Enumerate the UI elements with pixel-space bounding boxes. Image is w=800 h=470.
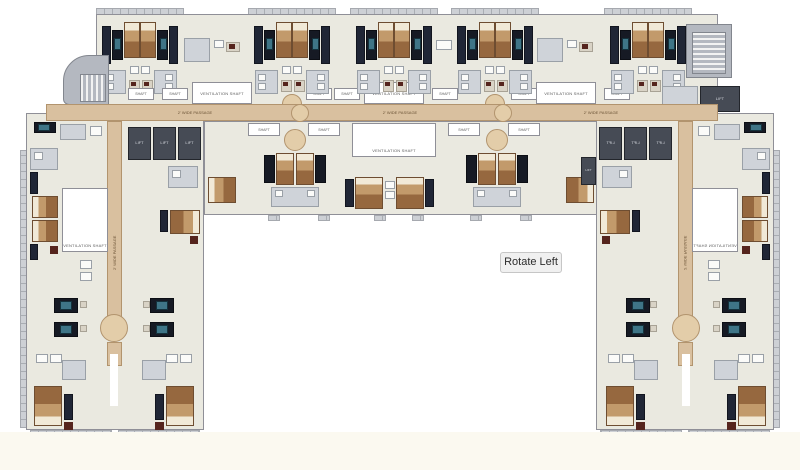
stove xyxy=(283,82,288,86)
bath-fixture xyxy=(317,83,325,90)
bath-fixture xyxy=(165,74,173,81)
bed xyxy=(606,386,634,426)
page-footer-band xyxy=(0,432,800,470)
bed xyxy=(495,22,511,58)
passage-label: 2' WIDE PASSAGE xyxy=(556,107,646,118)
door-fixture xyxy=(130,66,139,74)
bed xyxy=(478,153,496,185)
passage-junction xyxy=(494,104,512,122)
wardrobe xyxy=(64,394,73,420)
fixture xyxy=(36,354,48,363)
tv-screen xyxy=(414,38,421,50)
door-fixture xyxy=(649,66,658,74)
bed xyxy=(34,386,62,426)
bath-fixture xyxy=(619,170,628,178)
bathroom xyxy=(184,38,210,62)
stove xyxy=(582,44,588,49)
bed xyxy=(479,22,495,58)
stove xyxy=(499,82,504,86)
stove xyxy=(486,82,491,86)
bath-fixture xyxy=(214,40,224,48)
left-wing: LIFT LIFT LIFT 2' WIDE PASSAGE VENTILATI… xyxy=(20,108,210,443)
shaft-label: SHAFT xyxy=(135,92,146,96)
bath-fixture xyxy=(520,83,528,90)
balcony xyxy=(412,215,424,221)
chair xyxy=(650,325,657,332)
bath-fixture xyxy=(275,190,283,197)
bath-fixture xyxy=(461,83,469,90)
bath-fixture xyxy=(461,74,469,81)
passage-label-text: 2' WIDE PASSAGE xyxy=(383,110,417,115)
shaft-label: SHAFT xyxy=(169,92,180,96)
bath-fixture xyxy=(258,74,266,81)
chair xyxy=(143,325,150,332)
desk-screen xyxy=(156,301,168,310)
bed xyxy=(738,386,766,426)
light-well xyxy=(110,354,118,406)
stove xyxy=(652,82,657,86)
wardrobe xyxy=(457,26,466,64)
chair xyxy=(650,301,657,308)
door-fixture xyxy=(384,66,393,74)
tv-screen xyxy=(750,124,762,131)
tv-screen xyxy=(368,38,375,50)
ventilation-shaft: VENTILATION SHAFT xyxy=(536,82,596,104)
stove xyxy=(190,236,198,244)
right-wing: LIFT LIFT LIFT 2' WIDE PASSAGE VENTILATI… xyxy=(590,108,780,443)
bathroom xyxy=(62,360,86,380)
bed xyxy=(600,210,630,234)
bathroom xyxy=(714,360,738,380)
fixture xyxy=(708,260,720,269)
bed xyxy=(208,177,236,203)
stove xyxy=(50,246,58,254)
bath-fixture xyxy=(673,74,681,81)
passage-label: 2' WIDE PASSAGE xyxy=(150,107,240,118)
fixture xyxy=(50,354,62,363)
door-fixture xyxy=(293,66,302,74)
chair xyxy=(80,301,87,308)
fixture xyxy=(166,354,178,363)
passage-junction xyxy=(672,314,700,342)
wardrobe xyxy=(423,26,432,64)
balcony xyxy=(318,215,330,221)
tv-screen xyxy=(114,38,121,50)
bed xyxy=(742,220,768,242)
tv-screen xyxy=(160,38,167,50)
wardrobe xyxy=(30,172,38,194)
desk-screen xyxy=(632,325,644,334)
bed xyxy=(276,153,294,185)
bed xyxy=(394,22,410,58)
ventilation-shaft: VENTILATION SHAFT xyxy=(62,188,108,252)
wardrobe xyxy=(155,394,164,420)
fixture xyxy=(90,126,102,136)
ventilation-shaft-label: VENTILATION SHAFT xyxy=(693,243,737,248)
bathroom xyxy=(60,124,86,140)
stove xyxy=(131,82,136,86)
bath-fixture xyxy=(419,83,427,90)
shaft: SHAFT xyxy=(128,88,154,100)
door-fixture xyxy=(496,66,505,74)
bed xyxy=(276,22,292,58)
lift: LIFT xyxy=(178,127,201,160)
bath-fixture xyxy=(614,83,622,90)
door-fixture xyxy=(385,191,395,199)
wardrobe xyxy=(762,244,770,260)
wardrobe xyxy=(762,172,770,194)
stove xyxy=(385,82,390,86)
balcony xyxy=(520,215,532,221)
lift: LIFT xyxy=(128,127,151,160)
fixture xyxy=(738,354,750,363)
stove xyxy=(144,82,149,86)
bed xyxy=(124,22,140,58)
bath-fixture xyxy=(477,190,485,197)
bed xyxy=(140,22,156,58)
tv-screen xyxy=(622,38,629,50)
floorplan-viewer: VENTILATION SHAFT VENTILATION SHAFT VENT… xyxy=(0,0,800,470)
bath-fixture xyxy=(258,83,266,90)
passage-junction xyxy=(486,129,508,151)
desk-screen xyxy=(156,325,168,334)
fixture xyxy=(608,354,620,363)
wardrobe xyxy=(169,26,178,64)
tv-unit xyxy=(466,155,477,183)
tv-screen xyxy=(266,38,273,50)
bed xyxy=(498,153,516,185)
bed xyxy=(742,196,768,218)
bed xyxy=(292,22,308,58)
bath-fixture xyxy=(307,190,315,197)
door-fixture xyxy=(395,66,404,74)
bed xyxy=(355,177,383,209)
bath-fixture xyxy=(419,74,427,81)
apartment-cluster xyxy=(260,127,330,211)
wardrobe xyxy=(636,394,645,420)
wardrobe xyxy=(727,394,736,420)
tv-screen xyxy=(312,38,319,50)
bathroom xyxy=(537,38,563,62)
bed xyxy=(632,22,648,58)
shaft-label: SHAFT xyxy=(341,92,352,96)
passage-label-text: 2' WIDE PASSAGE xyxy=(584,110,618,115)
door-fixture xyxy=(141,66,150,74)
lift: LIFT xyxy=(153,127,176,160)
ventilation-shaft: VENTILATION SHAFT xyxy=(192,82,252,104)
wardrobe xyxy=(254,26,263,64)
fixture xyxy=(80,260,92,269)
bath-fixture xyxy=(34,152,43,160)
bathroom xyxy=(714,124,740,140)
bath-fixture xyxy=(360,83,368,90)
wardrobe xyxy=(425,179,434,207)
bath-fixture xyxy=(614,74,622,81)
passage-label: 2' WIDE PASSAGE xyxy=(107,218,122,288)
balcony xyxy=(374,215,386,221)
staircase-steps xyxy=(80,74,106,102)
door-fixture xyxy=(282,66,291,74)
wardrobe xyxy=(30,244,38,260)
door-fixture xyxy=(385,181,395,189)
apartment-unit-pair xyxy=(254,22,330,100)
apartment-unit-pair xyxy=(457,22,533,100)
shaft: SHAFT xyxy=(432,88,458,100)
passage-label-text: 2' WIDE PASSAGE xyxy=(683,236,688,270)
passage-label: 2' WIDE PASSAGE xyxy=(355,107,445,118)
ventilation-shaft-label: VENTILATION SHAFT xyxy=(372,148,416,153)
chair xyxy=(713,325,720,332)
bathroom xyxy=(634,360,658,380)
lift-label: LIFT xyxy=(606,141,614,145)
bed xyxy=(32,220,58,242)
ventilation-shaft: VENTILATION SHAFT xyxy=(352,123,436,157)
shaft-label: SHAFT xyxy=(439,92,450,96)
wardrobe xyxy=(321,26,330,64)
wardrobe xyxy=(632,210,640,232)
apartment-cluster xyxy=(462,127,532,211)
middle-building-band: SHAFT SHAFT VENTILATION SHAFT SHAFT SHAF… xyxy=(204,121,598,223)
wardrobe xyxy=(524,26,533,64)
tv-screen xyxy=(668,38,675,50)
tv-unit xyxy=(517,155,528,183)
wardrobe xyxy=(160,210,168,232)
fixture xyxy=(752,354,764,363)
fixture xyxy=(622,354,634,363)
ventilation-shaft-label: VENTILATION SHAFT xyxy=(200,91,244,96)
lift: LIFT xyxy=(599,127,622,160)
stove xyxy=(296,82,301,86)
passage-label-text: 2' WIDE PASSAGE xyxy=(112,236,117,270)
passage-junction xyxy=(291,104,309,122)
wardrobe xyxy=(677,26,686,64)
lift-label: LIFT xyxy=(716,97,724,101)
shaft: SHAFT xyxy=(162,88,188,100)
apartment-unit-pair xyxy=(356,22,432,100)
ventilation-shaft-label: VENTILATION SHAFT xyxy=(63,243,107,248)
bed xyxy=(396,177,424,209)
wardrobe xyxy=(610,26,619,64)
passage-label-text: 2' WIDE PASSAGE xyxy=(178,110,212,115)
tv-screen xyxy=(515,38,522,50)
wardrobe xyxy=(356,26,365,64)
bath-fixture xyxy=(360,74,368,81)
bed xyxy=(170,210,200,234)
desk-screen xyxy=(728,301,740,310)
bathroom xyxy=(142,360,166,380)
chair xyxy=(713,301,720,308)
lift-label: LIFT xyxy=(656,141,664,145)
lift: LIFT xyxy=(624,127,647,160)
lift-label: LIFT xyxy=(185,141,193,145)
ventilation-shaft-label: VENTILATION SHAFT xyxy=(544,91,588,96)
balcony xyxy=(268,215,280,221)
staircase-steps xyxy=(692,32,726,74)
door-fixture xyxy=(485,66,494,74)
lift-label: LIFT xyxy=(631,141,639,145)
bed xyxy=(166,386,194,426)
bath-fixture xyxy=(317,74,325,81)
balcony xyxy=(470,215,482,221)
desk-screen xyxy=(728,325,740,334)
tv-screen xyxy=(38,124,50,131)
ventilation-shaft: VENTILATION SHAFT xyxy=(692,188,738,252)
fixture xyxy=(80,272,92,281)
desk-screen xyxy=(632,301,644,310)
fixture xyxy=(180,354,192,363)
tv-unit xyxy=(315,155,326,183)
bed xyxy=(296,153,314,185)
lift-label: LIFT xyxy=(135,141,143,145)
passage-junction xyxy=(100,314,128,342)
chair xyxy=(143,301,150,308)
desk-screen xyxy=(60,325,72,334)
desk-screen xyxy=(60,301,72,310)
door-fixture xyxy=(638,66,647,74)
stove xyxy=(398,82,403,86)
stove xyxy=(639,82,644,86)
tv-unit xyxy=(264,155,275,183)
bath-fixture xyxy=(520,74,528,81)
chair xyxy=(80,325,87,332)
bath-fixture xyxy=(757,152,766,160)
light-well xyxy=(682,354,690,406)
tv-screen xyxy=(469,38,476,50)
bath-fixture xyxy=(509,190,517,197)
wardrobe xyxy=(345,179,354,207)
fixture xyxy=(698,126,710,136)
bath-fixture xyxy=(172,170,181,178)
passage-label: 2' WIDE PASSAGE xyxy=(678,218,693,288)
stove xyxy=(602,236,610,244)
passage-junction xyxy=(284,129,306,151)
bed xyxy=(648,22,664,58)
fixture xyxy=(708,272,720,281)
lift-label: LIFT xyxy=(160,141,168,145)
stove xyxy=(742,246,750,254)
rotate-left-button[interactable]: Rotate Left xyxy=(500,252,562,273)
bed xyxy=(32,196,58,218)
bath-fixture xyxy=(567,40,577,48)
bed xyxy=(378,22,394,58)
lift: LIFT xyxy=(649,127,672,160)
stove xyxy=(229,44,235,49)
fixture xyxy=(436,40,452,50)
